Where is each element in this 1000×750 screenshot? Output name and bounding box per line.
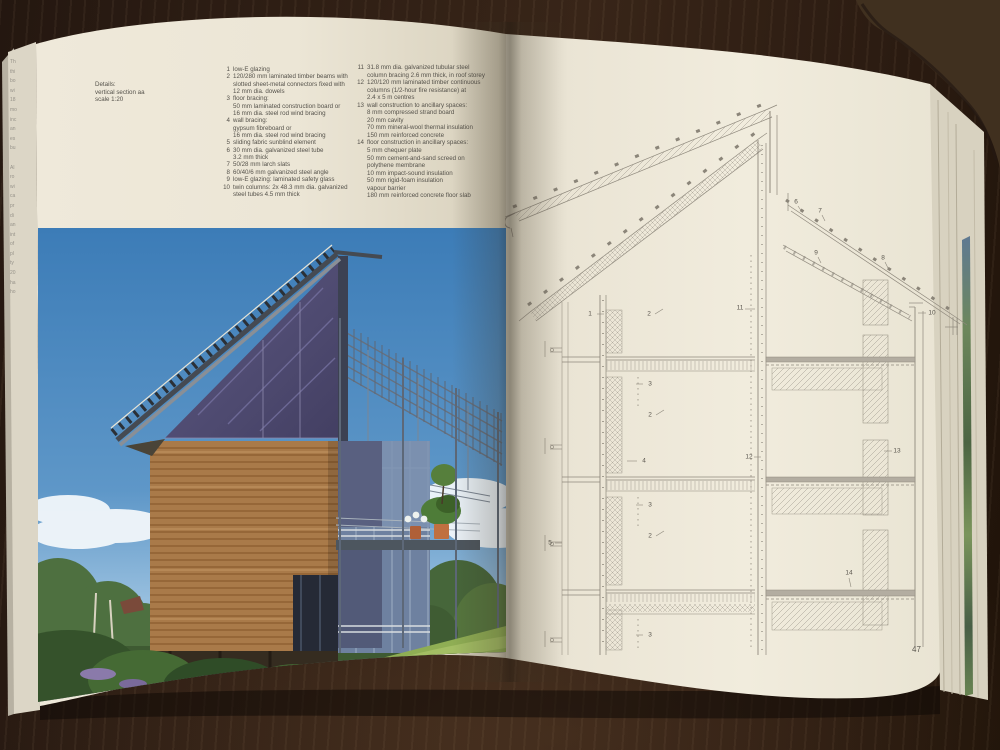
legend-item-number: 8 (219, 169, 230, 176)
legend-item-number: 9 (219, 176, 230, 183)
legend-item-text: sliding fabric sunblind element (233, 139, 357, 146)
drawing-callout: 11 (737, 305, 744, 312)
legend-item-text: floor construction in ancillary spaces: … (367, 139, 515, 199)
legend-column-2: 1131.8 mm dia. galvanized tubular steel … (353, 64, 515, 200)
drawing-callout: 10 (928, 310, 935, 317)
drawing-callout: 2 (648, 412, 652, 419)
drawing-callout: 3 (648, 632, 652, 639)
drawing-callout: 12 (745, 454, 752, 461)
page-number: 47 (912, 645, 921, 654)
legend-item-number: 5 (219, 139, 230, 146)
drawing-callout: 6 (794, 199, 798, 206)
section-caption: Details: vertical section aa scale 1:20 (95, 81, 191, 104)
legend-item-number: 1 (219, 66, 230, 73)
page-edge-fragments: Th thi bo wi 18 mo inc an es bu Al ro wi… (10, 58, 32, 298)
legend-item-number: 14 (353, 139, 364, 147)
legend-item-text: 30 mm dia. galvanized steel tube 3.2 mm … (233, 147, 357, 162)
photographed-book-scene: Th thi bo wi 18 mo inc an es bu Al ro wi… (0, 0, 1000, 750)
legend-column-1: 1low-E glazing 2120/280 mm laminated tim… (219, 66, 357, 198)
legend-item-text: 120/120 mm laminated timber continuous c… (367, 79, 515, 102)
legend-item-number: 2 (219, 73, 230, 80)
legend-item-text: low-E glazing: laminated safety glass (233, 176, 357, 183)
drawing-callout: 2 (648, 533, 652, 540)
section-drawing: 1 2 2 2 3 3 3 4 5 6 7 8 9 10 11 12 13 14 (505, 95, 980, 665)
drawing-callout: 14 (845, 570, 852, 577)
drawing-callout: 13 (893, 448, 900, 455)
legend-item-text: twin columns: 2x 48.3 mm dia. galvanized… (233, 184, 357, 199)
legend-item-number: 11 (353, 64, 364, 72)
legend-item-text: wall bracing: gypsum fibreboard or 16 mm… (233, 117, 357, 139)
legend-item-text: 60/40/6 mm galvanized steel angle (233, 169, 357, 176)
legend-item-number: 12 (353, 79, 364, 87)
legend-item-number: 4 (219, 117, 230, 124)
legend-item-number: 3 (219, 95, 230, 102)
drawing-callout: 1 (588, 311, 592, 318)
legend-item-number: 6 (219, 147, 230, 154)
drawing-callout: 4 (642, 458, 646, 465)
legend-item-number: 10 (219, 184, 230, 191)
drawing-callout: 7 (818, 208, 822, 215)
legend-item-text: wall construction to ancillary spaces: 8… (367, 102, 515, 140)
legend-item-text: floor bracing: 50 mm laminated construct… (233, 95, 357, 117)
drawing-callout: 3 (648, 502, 652, 509)
legend-item-text: 50/28 mm larch slats (233, 161, 357, 168)
house-photo (38, 228, 506, 706)
legend-item-number: 7 (219, 161, 230, 168)
legend-item-number: 13 (353, 102, 364, 110)
drawing-callout: 3 (648, 381, 652, 388)
drawing-callout: 5 (548, 540, 552, 547)
legend-item-text: 120/280 mm laminated timber beams with s… (233, 73, 357, 95)
drawing-callout: 9 (814, 250, 818, 257)
legend-item-text: low-E glazing (233, 66, 357, 73)
drawing-callout: 2 (647, 311, 651, 318)
legend-item-text: 31.8 mm dia. galvanized tubular steel co… (367, 64, 515, 79)
drawing-callout: 8 (881, 255, 885, 262)
